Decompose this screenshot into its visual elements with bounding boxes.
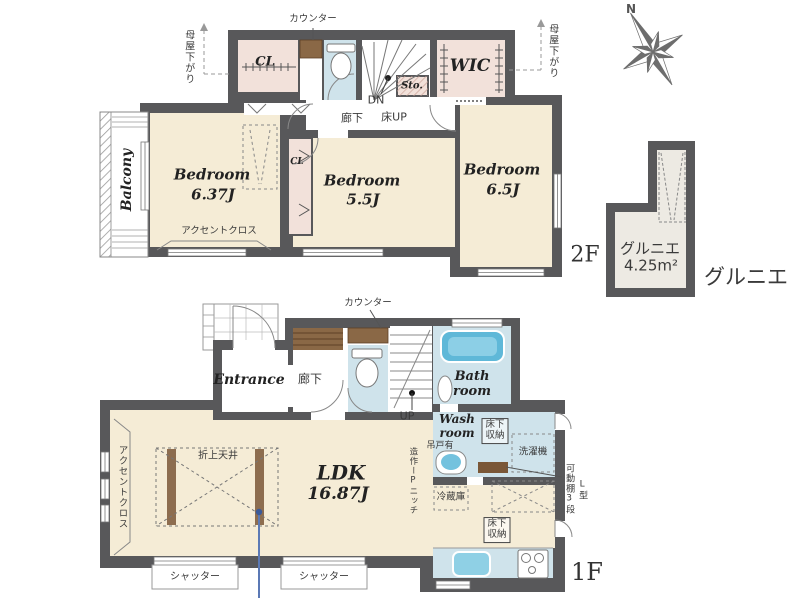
counter-1f-label: カウンター [344, 299, 392, 310]
shoe-cabinet [293, 328, 343, 350]
kitchen-sink [453, 552, 490, 576]
counter-2f-label: カウンター [289, 15, 337, 26]
counter-1f [348, 328, 388, 343]
hanging-door-label: 吊戸有 [426, 441, 453, 451]
counter-nook-floor [300, 58, 322, 100]
closet-top-label: CL [255, 56, 275, 71]
shutter-left-label: シャッター [170, 571, 220, 583]
coffered-ceiling-label: 折上天井 [198, 450, 238, 462]
refrigerator-label: 冷蔵庫 [437, 493, 466, 504]
loft-area-label: 4.25m² [624, 257, 678, 274]
floor1-tag: 1F [571, 559, 603, 587]
hallway-1f-label: 廊下 [298, 373, 322, 387]
movable-shelf [478, 462, 508, 473]
bedroom3-size: 6.5J [486, 181, 519, 198]
roof-note-left-label: 母屋下がり [182, 30, 194, 85]
shelf-type-label: L型 [577, 480, 587, 501]
floor-plan-canvas: 母屋下がり カウンター CL Sto. WIC 母屋下がり DN 廊下 床UP … [0, 0, 800, 600]
storage-label: Sto. [401, 80, 423, 92]
underfloor-storage-wash-label: 床下収納 [482, 418, 509, 444]
entrance-label: Entrance [213, 372, 284, 388]
stove [518, 550, 548, 578]
bedroom1-size: 6.37J [191, 186, 235, 203]
shelf-note-label: 可動棚3段 [564, 464, 574, 515]
loft-caption: グルニエ [704, 265, 788, 289]
floor2-tag: 2F [570, 242, 599, 267]
washroom-label: Wash room [435, 413, 479, 441]
ldk-size: 16.87J [307, 485, 368, 505]
loft-name-label: グルニエ [620, 240, 680, 257]
floor1-plan [100, 304, 572, 598]
roof-note-right-label: 母屋下がり [546, 24, 558, 79]
bedroom1-name: Bedroom [174, 166, 251, 183]
closet-mid-floor [288, 138, 312, 235]
bedroom2-size: 5.5J [346, 191, 379, 208]
shutter-right-label: シャッター [299, 571, 349, 583]
accent-wall-2f-label: アクセントクロス [181, 227, 257, 238]
compass-north-label: N [626, 3, 636, 17]
washing-machine-label: 洗濯機 [519, 448, 548, 459]
bathroom-label: Bath room [448, 370, 496, 400]
counter-2f [300, 40, 322, 58]
bedroom2-name: Bedroom [324, 172, 401, 189]
down-label: DN [368, 95, 385, 108]
floor2-plan [100, 19, 562, 277]
wic-label: WIC [450, 57, 491, 77]
up-label: UP [400, 411, 415, 424]
floor-up-label: 床UP [381, 112, 407, 125]
hallway-2f-label: 廊下 [341, 113, 363, 126]
compass-rose [601, 0, 701, 102]
bathtub [441, 331, 504, 362]
ldk-name: LDK [317, 462, 366, 485]
wash-basin [436, 451, 466, 474]
closet-mid-label: CL [290, 157, 304, 167]
underfloor-storage-kitchen-label: 床下収納 [484, 517, 511, 543]
balcony-label: Balcony [119, 149, 135, 211]
accent-wall-1f-label: アクセントクロス [116, 445, 127, 529]
bedroom3-name: Bedroom [464, 161, 541, 178]
niche-note-label: 造作ーPニッチ [407, 447, 417, 515]
